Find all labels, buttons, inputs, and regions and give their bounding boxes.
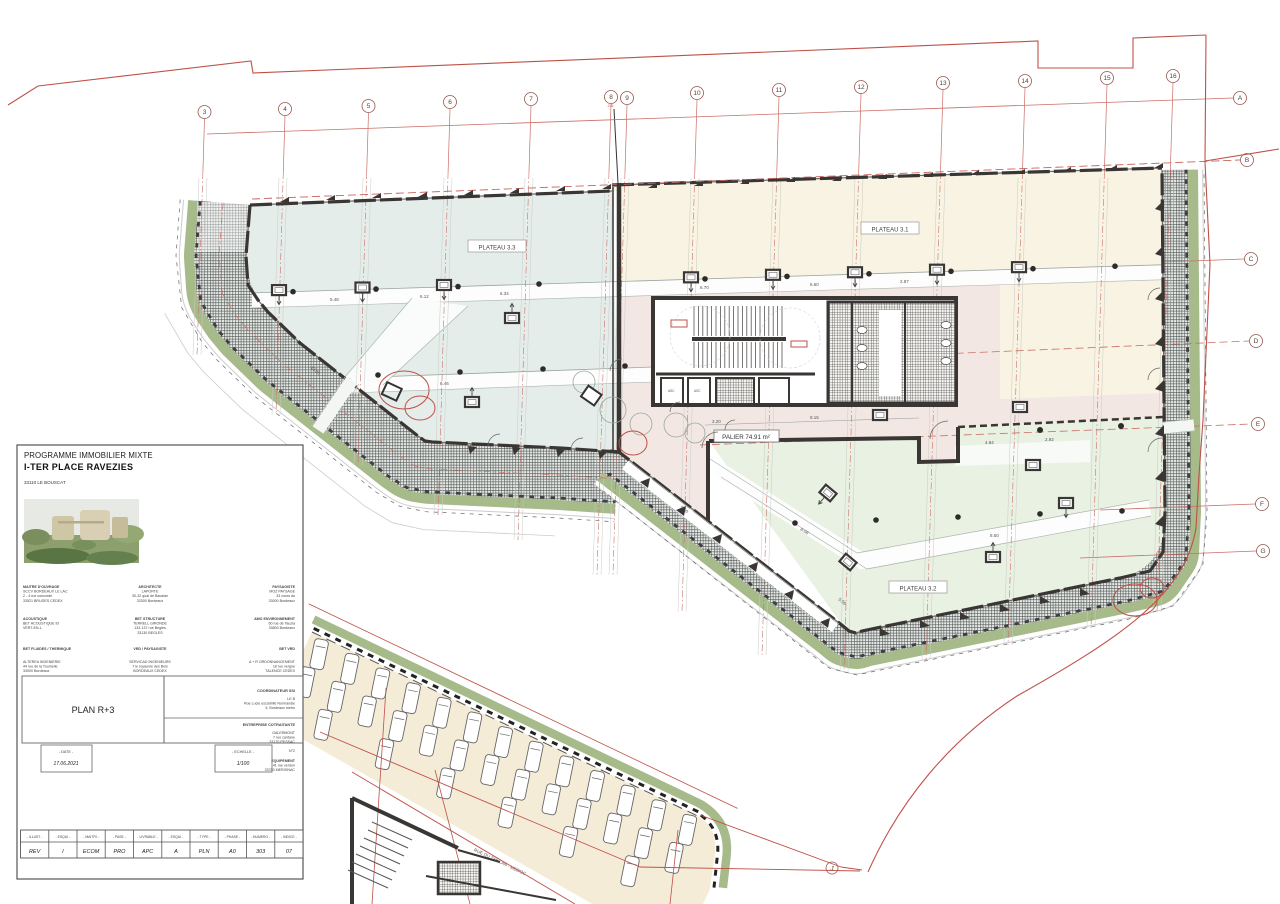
- svg-text:6: 6: [448, 99, 452, 106]
- svg-text:5, Bordeaux metro: 5, Bordeaux metro: [265, 706, 295, 710]
- svg-text:N°2: N°2: [289, 749, 295, 753]
- svg-text:133-137 rue Begles: 133-137 rue Begles: [134, 626, 166, 630]
- svg-text:- ILLUST -: - ILLUST -: [27, 835, 43, 839]
- svg-text:33130 BEGLES: 33130 BEGLES: [137, 631, 163, 635]
- svg-text:44 rue de la Tournelle: 44 rue de la Tournelle: [23, 665, 58, 669]
- svg-text:33110 LE BOUSCAT: 33110 LE BOUSCAT: [24, 480, 66, 485]
- svg-text:2 - 4 rue concorde: 2 - 4 rue concorde: [23, 594, 52, 598]
- svg-text:- ESQUI -: - ESQUI -: [169, 835, 184, 839]
- svg-text:- DATE -: - DATE -: [59, 750, 74, 754]
- svg-text:ENTREPRISE COTRAITANTE: ENTREPRISE COTRAITANTE: [243, 723, 296, 727]
- svg-text:4: 4: [283, 106, 287, 113]
- svg-text:BET VRD: BET VRD: [279, 647, 295, 651]
- svg-text:AMO ENVIRONNEMENT: AMO ENVIRONNEMENT: [254, 617, 296, 621]
- svg-text:PLN: PLN: [199, 849, 210, 855]
- svg-text:6.12: 6.12: [420, 294, 429, 299]
- svg-text:A: A: [1238, 95, 1243, 102]
- svg-text:G: G: [1260, 548, 1265, 555]
- svg-text:2.87: 2.87: [900, 279, 909, 284]
- svg-text:14: 14: [1021, 78, 1029, 85]
- svg-text:33 cours du: 33 cours du: [276, 594, 295, 598]
- svg-text:PLATEAU 3.1: PLATEAU 3.1: [872, 228, 910, 234]
- svg-text:15: 15: [1103, 75, 1111, 82]
- svg-text:7: 7: [529, 96, 533, 103]
- svg-text:33800 Bordeaux: 33800 Bordeaux: [269, 626, 296, 630]
- svg-text:COORDINATEUR SSI: COORDINATEUR SSI: [257, 689, 295, 693]
- svg-text:6.60: 6.60: [810, 282, 819, 287]
- svg-text:PLATEAU 3.3: PLATEAU 3.3: [479, 246, 517, 252]
- svg-text:ACOUSTIQUE: ACOUSTIQUE: [23, 617, 48, 621]
- svg-text:6.34: 6.34: [500, 291, 509, 296]
- svg-text:8.50: 8.50: [990, 533, 999, 538]
- svg-text:33000 Bordeaux: 33000 Bordeaux: [269, 599, 296, 603]
- svg-text:D: D: [1254, 338, 1259, 345]
- svg-text:- PHASE -: - PHASE -: [225, 835, 241, 839]
- svg-text:- NUMERO -: - NUMERO -: [251, 835, 270, 839]
- svg-text:- ECHELLE -: - ECHELLE -: [232, 750, 255, 754]
- svg-text:ASC: ASC: [694, 389, 701, 393]
- svg-text:33000 Bordeaux: 33000 Bordeaux: [23, 669, 50, 673]
- svg-text:16: 16: [1169, 73, 1177, 80]
- svg-text:60 rue de Tauzia: 60 rue de Tauzia: [268, 622, 295, 626]
- svg-text:17.06.2021: 17.06.2021: [53, 761, 78, 767]
- svg-text:A0: A0: [228, 849, 237, 855]
- svg-text:6.46: 6.46: [440, 381, 449, 386]
- svg-text:SCCV BORDEAUX LE LAC: SCCV BORDEAUX LE LAC: [23, 590, 68, 594]
- svg-text:4.84: 4.84: [985, 440, 994, 445]
- svg-text:LE B: LE B: [287, 697, 295, 701]
- svg-text:EQUIPEMENT: EQUIPEMENT: [271, 759, 296, 763]
- svg-text:PAYSAGISTE: PAYSAGISTE: [272, 585, 295, 589]
- svg-text:SERVICAD INGENIEURS: SERVICAD INGENIEURS: [129, 660, 171, 664]
- svg-text:11: 11: [776, 87, 783, 94]
- svg-text:F: F: [1260, 501, 1264, 508]
- svg-text:PLAN R+3: PLAN R+3: [72, 705, 115, 715]
- svg-text:5: 5: [367, 103, 371, 110]
- svg-text:7 rue cantane: 7 rue cantane: [273, 736, 295, 740]
- svg-text:9.15: 9.15: [810, 415, 819, 420]
- svg-text:13: 13: [939, 80, 947, 87]
- svg-text:- LIVRABLE -: - LIVRABLE -: [137, 835, 157, 839]
- svg-text:- PASE -: - PASE -: [113, 835, 126, 839]
- svg-text:PROGRAMME IMMOBILIER MIXTE: PROGRAMME IMMOBILIER MIXTE: [24, 451, 153, 460]
- svg-text:2.92: 2.92: [1045, 437, 1054, 442]
- svg-text:303: 303: [256, 849, 266, 855]
- svg-text:- INDICE -: - INDICE -: [281, 835, 297, 839]
- svg-text:J.D.: J.D.: [607, 103, 614, 108]
- svg-text:PLATEAU 3.2: PLATEAU 3.2: [900, 587, 938, 593]
- svg-text:TERRELL GIRONDE: TERRELL GIRONDE: [133, 622, 167, 626]
- svg-text:7 le royaume des Bois: 7 le royaume des Bois: [132, 665, 168, 669]
- svg-text:BET ACOUSTIQUE ID: BET ACOUSTIQUE ID: [23, 622, 59, 626]
- svg-text:TALENCE CEDEX: TALENCE CEDEX: [265, 669, 295, 673]
- svg-text:C: C: [1249, 256, 1254, 263]
- svg-text:33521 BRUGES CEDEX: 33521 BRUGES CEDEX: [23, 599, 63, 603]
- svg-text:41 rue verdun: 41 rue verdun: [273, 764, 295, 768]
- svg-text:BET STRUCTURE: BET STRUCTURE: [135, 617, 166, 621]
- svg-text:- ESQUI -: - ESQUI -: [56, 835, 71, 839]
- svg-text:12: 12: [857, 84, 865, 91]
- svg-text:5.48: 5.48: [330, 297, 339, 302]
- svg-text:GALERMONT: GALERMONT: [272, 731, 296, 735]
- svg-text:B: B: [1245, 157, 1249, 164]
- svg-text:VRD / PAYSAGISTE: VRD / PAYSAGISTE: [133, 647, 167, 651]
- svg-text:ALTEREA INGENIERIE: ALTEREA INGENIERIE: [23, 660, 61, 664]
- svg-text:MOZ PAYSAGE: MOZ PAYSAGE: [269, 590, 295, 594]
- svg-text:10: 10: [693, 90, 701, 97]
- svg-text:I-TER PLACE RAVEZIES: I-TER PLACE RAVEZIES: [24, 462, 133, 472]
- svg-text:MAITRE D'OUVRAGE: MAITRE D'OUVRAGE: [23, 585, 60, 589]
- svg-text:A + R ORDONNANCEMENT: A + R ORDONNANCEMENT: [249, 660, 296, 664]
- svg-text:PALIER 74.91 m²: PALIER 74.91 m²: [722, 434, 770, 441]
- svg-text:REV: REV: [29, 849, 42, 855]
- svg-text:BORDEAUX CEDEX: BORDEAUX CEDEX: [133, 669, 167, 673]
- svg-text:Rue Lucie escadrille Normandie: Rue Lucie escadrille Normandie: [244, 702, 295, 706]
- svg-text:LAPORTE: LAPORTE: [142, 590, 159, 594]
- svg-text:3.20: 3.20: [712, 419, 721, 424]
- svg-text:- TYPE -: - TYPE -: [198, 835, 211, 839]
- svg-text:8: 8: [609, 94, 613, 101]
- svg-text:VERT-EN-L: VERT-EN-L: [23, 626, 42, 630]
- svg-text:07: 07: [286, 849, 293, 855]
- svg-text:E: E: [1256, 421, 1261, 428]
- svg-text:33170 PESSAC: 33170 PESSAC: [269, 740, 295, 744]
- svg-text:A: A: [173, 849, 178, 855]
- svg-text:33300 Bordeaux: 33300 Bordeaux: [137, 599, 164, 603]
- svg-text:BET FLUIDES / THERMIQUE: BET FLUIDES / THERMIQUE: [23, 647, 72, 651]
- svg-text:30-32 quai de Bacalan: 30-32 quai de Bacalan: [132, 594, 168, 598]
- svg-text:9: 9: [625, 95, 629, 102]
- svg-text:APC: APC: [141, 849, 153, 855]
- svg-text:1/100: 1/100: [237, 761, 250, 767]
- svg-text:18 rue vergne: 18 rue vergne: [273, 665, 295, 669]
- svg-text:6.70: 6.70: [700, 285, 709, 290]
- svg-text:- MAITRI -: - MAITRI -: [83, 835, 99, 839]
- svg-text:3: 3: [203, 109, 207, 116]
- svg-text:ECOM: ECOM: [83, 849, 100, 855]
- svg-text:ASC: ASC: [668, 389, 675, 393]
- svg-text:ARCHITECTE: ARCHITECTE: [138, 585, 162, 589]
- svg-text:PRO: PRO: [113, 849, 126, 855]
